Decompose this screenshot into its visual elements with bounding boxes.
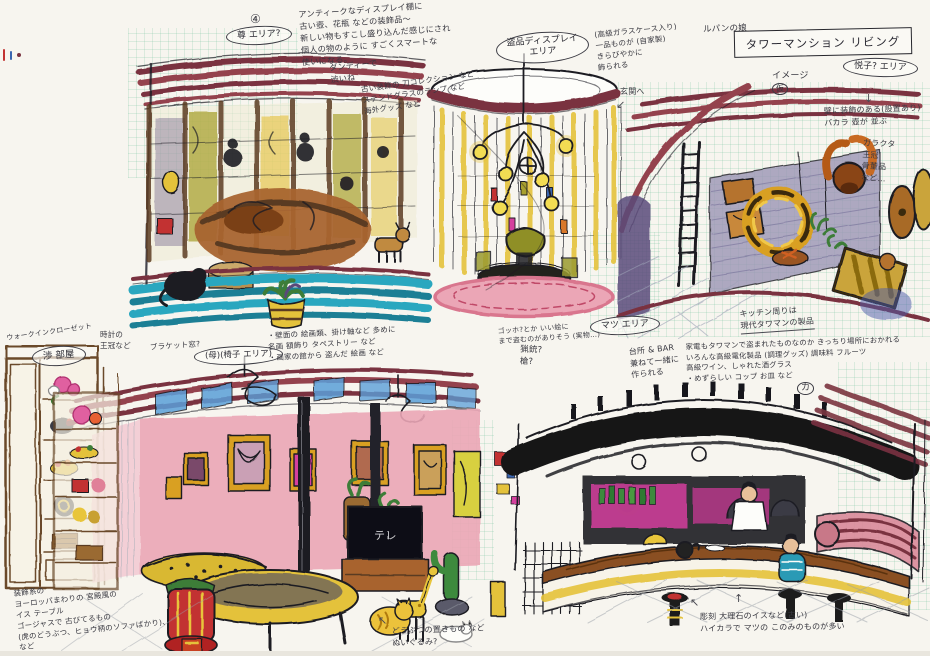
page-title: タワーマンション リビング [746,33,901,52]
arrow-down-left: ↙ [616,98,625,111]
concept-art-board: テレ [0,0,930,656]
note-entrance: 玄関へ [620,86,645,98]
scan-edge [0,651,930,656]
planter [265,280,305,328]
arrow-up-left: ↖ [378,614,387,627]
note-animal-figures: どうぶつの置きもの など ぬいぐるみ? [392,622,486,648]
wall-shields [880,170,930,270]
title-box: タワーマンション リビング [734,27,913,58]
image-label-mark: 仮 [772,83,788,95]
note-glass-case: (高級ガラスケース入り) 一品ものが (自家製) きらびやかに 飾られる [594,22,681,74]
round-sofa [195,188,371,272]
blue-scribble [860,288,912,320]
note-gogh: ゴッホ?とか いい絵に まで盗むのがありそう (実物…) [497,319,600,346]
note-kitchen-detail: 家電もタワマンで盗まれたものなのか きっちり場所におかれる いろんな高級電化製品… [685,334,930,385]
left-display-shelf [54,393,118,589]
bar-counter [543,546,909,616]
tv-unit: テレ [342,507,428,591]
sketch-display-wall-lounge [133,32,428,332]
pen-test-marks [0,46,26,70]
image-label: イメージ 仮 [772,57,809,96]
note-bracket-window: ブラケット窓? [150,339,201,353]
round-rug [435,278,613,316]
sketch-bar-kitchen [487,366,929,622]
svg-text:テレ: テレ [374,529,396,542]
fruit-bowl [772,250,808,266]
clerestory-windows [156,377,476,415]
back-bar [583,476,805,544]
note-wall-decor: 壁に装飾のある(設置あり) バカラ 壺が 並ぶ [824,102,922,129]
note-rifle-spear: 猟銃? 槍? [520,344,543,369]
note-crown: 時計の 王冠など [100,330,131,352]
ladder [679,142,699,286]
note-antique-chairs: 彫刻 大理石のイスなど(古い) ハイカラで マツの このみのものが多い [700,609,845,635]
entrance-arch [618,195,650,320]
left-wall-chips [495,424,519,570]
note-bar-kitchen: 台所 & BAR 兼ねて一緒に 作られる [628,342,681,382]
seated-figure [778,534,805,620]
note-paintings: ・壁面の 絵画類、掛け軸など 多めに 名画 額飾り タペストリー など ・画家の… [267,325,397,364]
bubble-etsuko-area: 悦子? エリア [843,57,918,79]
arrow-up: ↑ [734,592,743,605]
arrow-up-left: ↖ [690,596,699,609]
note-kitchen-modern: キッチン周りは 現代タワマンの製品 [739,303,814,334]
note-wall-decor-2: ガラクタ 王冠 骨董品 など… [861,137,896,185]
circled-ka-marker: カ [797,382,814,395]
